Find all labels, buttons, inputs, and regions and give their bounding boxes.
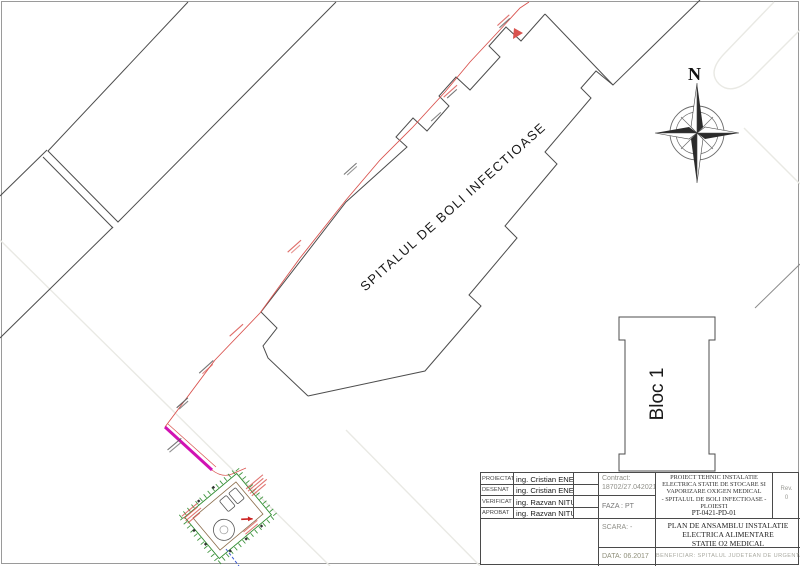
rev-value: 0 [773,494,800,503]
compass-rose-icon: N [655,64,739,183]
signature-sign-cell [574,508,599,520]
signature-name: ing. Razvan NITU [514,508,574,520]
cable-route-line [165,2,529,427]
rev-label: Rev. [773,485,800,494]
drawing-title-line: PLAN DE ANSAMBLU INSTALATIE [656,521,800,530]
rev-cell: Rev. 0 [773,473,800,519]
signature-sign-cell [574,485,599,497]
logo-area: G R U P PSM energo Ex TÜV [481,519,599,566]
signature-name: ing. Razvan NITU [514,496,574,508]
feeder-cable-line [165,427,212,470]
signature-role: APROBAT [481,508,514,520]
beneficiar-cell: BENEFICIAR: SPITALUL JUDETEAN DE URGENTA… [656,548,800,566]
project-title-line: ELECTRICA STATIE DE STOCARE SI [656,481,772,488]
route-arrow-icon [513,28,523,39]
signature-sign-cell [574,473,599,485]
project-title-line: - SPITALUL DE BOLI INFECTIOASE - [656,496,772,503]
path-line [755,264,800,308]
faza-cell: FAZA : PT [599,496,656,519]
project-code: PT-0421-PD-01 [656,510,772,517]
drawing-title-line: STATIE O2 MEDICAL [656,539,800,548]
drawing-title-line: ELECTRICA ALIMENTARE [656,530,800,539]
oxygen-station-detail [167,438,276,566]
contract-value: 18702/27.042021 [602,484,655,493]
data-cell: DATA: 06.2017 [599,548,656,566]
signature-name: ing. Cristian ENE [514,473,574,485]
signature-role: PROIECTAT [481,473,514,485]
hospital-label: SPITALUL DE BOLI INFECTIOASE [357,119,549,294]
contract-cell: Contract: 18702/27.042021 [599,473,656,496]
project-title-cell: PROIECT TEHNIC INSTALATIE ELECTRICA STAT… [656,473,773,519]
signature-sign-cell [574,496,599,508]
route-annotations [176,14,511,410]
title-block: PROIECTAT ing. Cristian ENE DESENAT ing.… [480,472,799,565]
project-title-line: VAPORIZARE OXIGEN MEDICAL [656,488,772,495]
bloc1-label: Bloc 1 [647,368,668,421]
signature-name: ing. Cristian ENE [514,485,574,497]
building-wing-northwest [0,2,336,338]
project-title-line: PROIECT TEHNIC INSTALATIE [656,474,772,481]
signature-role: DESENAT [481,485,514,497]
north-label: N [688,64,701,84]
signature-role: VERIFICAT [481,496,514,508]
scara-cell: SCARA: - [599,519,656,548]
drawing-title-cell: PLAN DE ANSAMBLU INSTALATIE ELECTRICA AL… [656,519,800,548]
contract-label: Contract: [602,475,655,484]
cad-sheet: SPITALUL DE BOLI INFECTIOASE Bloc 1 N [0,0,800,566]
